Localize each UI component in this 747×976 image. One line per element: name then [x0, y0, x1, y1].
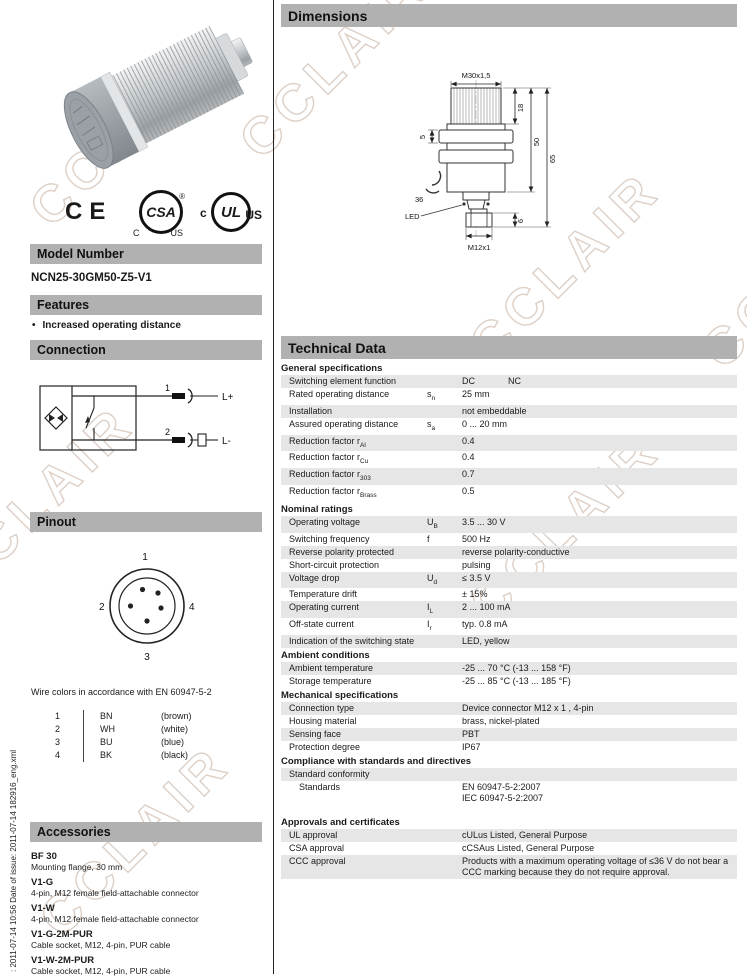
- accessory-desc: Cable socket, M12, 4-pin, PUR cable: [31, 966, 261, 976]
- dimensions-header: Dimensions: [281, 4, 737, 27]
- spec-row: Reverse polarity protectedreverse polari…: [281, 546, 737, 559]
- spec-value: brass, nickel-plated: [462, 716, 737, 727]
- pin-3-label: 3: [144, 652, 150, 663]
- spec-row: Reduction factor rBrass0.5: [281, 485, 737, 502]
- feature-item: • Increased operating distance: [32, 320, 181, 331]
- spec-label: Storage temperature: [289, 676, 427, 687]
- dim-connector-label: M12x1: [468, 243, 491, 252]
- spec-label: Reduction factor rBrass: [289, 486, 427, 501]
- wire-row: 1 BN (brown): [30, 710, 192, 723]
- wire-color: (brown): [149, 710, 192, 723]
- wire-row: 4 BK (black): [30, 749, 192, 762]
- spec-symbol: [427, 486, 462, 501]
- spec-symbol: [427, 676, 462, 687]
- spec-label: Sensing face: [289, 729, 427, 740]
- spec-section-title: Mechanical specifications: [281, 688, 737, 702]
- spec-value: 0.4: [462, 452, 737, 467]
- spec-symbol: [427, 469, 462, 484]
- spec-row: Short-circuit protectionpulsing: [281, 559, 737, 572]
- pinout-diagram: 1 2 4 3: [92, 548, 202, 666]
- spec-symbol: [427, 452, 462, 467]
- spec-value: -25 ... 85 °C (-13 ... 185 °F): [462, 676, 737, 687]
- spec-symbol: UB: [427, 517, 462, 532]
- accessories-header: Accessories: [30, 822, 262, 842]
- wire-row: 2 WH (white): [30, 723, 192, 736]
- spec-label: Housing material: [289, 716, 427, 727]
- spec-label: Temperature drift: [289, 589, 427, 600]
- spec-row: Switching frequencyf500 Hz: [281, 533, 737, 546]
- ce-mark: CE: [65, 198, 112, 226]
- pinout-header: Pinout: [30, 512, 262, 532]
- spec-label: Rated operating distance: [289, 389, 427, 404]
- dim-5-label: 5: [418, 135, 427, 139]
- spec-symbol: [427, 742, 462, 753]
- accessory-name: V1-W: [31, 903, 261, 914]
- spec-row: Assured operating distancesa0 ... 20 mm: [281, 418, 737, 435]
- spec-row: Ambient temperature-25 ... 70 °C (-13 ..…: [281, 662, 737, 675]
- connection-diagram: 1 L+ 2 L-: [32, 368, 244, 468]
- technical-table: General specificationsSwitching element …: [281, 361, 737, 879]
- feature-text: Increased operating distance: [43, 320, 181, 331]
- technical-data-header: Technical Data: [281, 336, 737, 359]
- spec-value: 0.4: [462, 436, 737, 451]
- spec-symbol: [427, 843, 462, 854]
- product-photo: [50, 4, 268, 184]
- spec-symbol: [427, 703, 462, 714]
- spec-symbol: [427, 716, 462, 727]
- spec-section-title: Nominal ratings: [281, 502, 737, 516]
- spec-value: cCSAus Listed, General Purpose: [462, 843, 737, 854]
- accessory-name: BF 30: [31, 851, 261, 862]
- ul-c-label: c: [200, 206, 207, 220]
- spec-section-title: Compliance with standards and directives: [281, 754, 737, 768]
- certification-logos: CE CSA ® C US c UL US: [30, 188, 262, 238]
- spec-row: Reduction factor rCu0.4: [281, 451, 737, 468]
- led-label: LED: [405, 212, 420, 221]
- pin-2-label: 2: [99, 602, 105, 613]
- spec-symbol: [427, 769, 462, 780]
- spec-symbol: sn: [427, 389, 462, 404]
- spec-symbol: [427, 376, 462, 387]
- spec-value: ± 15%: [462, 589, 737, 600]
- spec-value: 3.5 ... 30 V: [462, 517, 737, 532]
- spec-value-2: NC: [508, 376, 737, 387]
- conn-pin1-label: 1: [165, 383, 170, 393]
- spec-section-title: Ambient conditions: [281, 648, 737, 662]
- spec-value: 0.7: [462, 469, 737, 484]
- spec-label: Reduction factor rCu: [289, 452, 427, 467]
- pin-1-label: 1: [142, 552, 148, 563]
- spec-row: Off-state currentIrtyp. 0.8 mA: [281, 618, 737, 635]
- spec-symbol: Ud: [427, 573, 462, 588]
- spec-symbol: [427, 589, 462, 600]
- spec-row: CSA approvalcCSAus Listed, General Purpo…: [281, 842, 737, 855]
- spec-label: Reduction factor rAl: [289, 436, 427, 451]
- spec-value: [462, 769, 737, 780]
- spec-symbol: [427, 636, 462, 647]
- accessory-item: V1-G 4-pin, M12 female field-attachable …: [31, 877, 261, 898]
- accessory-item: BF 30 Mounting flange, 30 mm: [31, 851, 261, 872]
- spec-row: Operating currentIL2 ... 100 mA: [281, 601, 737, 618]
- spec-symbol: [427, 436, 462, 451]
- accessory-desc: 4-pin, M12 female field-attachable conne…: [31, 914, 261, 924]
- spec-row: Operating voltageUB3.5 ... 30 V: [281, 516, 737, 533]
- spec-row: Reduction factor r3030.7: [281, 468, 737, 485]
- conn-pin2-label: 2: [165, 427, 170, 437]
- ul-mark: c UL US: [200, 190, 262, 236]
- spec-label: Switching element function: [289, 376, 427, 387]
- spec-label: Operating current: [289, 602, 427, 617]
- accessory-name: V1-G: [31, 877, 261, 888]
- wire-pin: 1: [30, 710, 83, 723]
- dim-18-label: 18: [516, 104, 525, 112]
- csa-us-label: US: [170, 228, 183, 238]
- spec-symbol: [427, 406, 462, 417]
- spec-row: Installationnot embeddable: [281, 405, 737, 418]
- accessories-list: BF 30 Mounting flange, 30 mm V1-G 4-pin,…: [31, 846, 261, 976]
- spec-symbol: [427, 856, 462, 878]
- spec-label: Short-circuit protection: [289, 560, 427, 571]
- spec-symbol: [427, 830, 462, 841]
- spec-label: Reduction factor r303: [289, 469, 427, 484]
- dim-thread-label: M30x1,5: [462, 71, 491, 80]
- dim-36-label: 36: [415, 195, 423, 204]
- spec-row: Standard conformity: [281, 768, 737, 781]
- spec-label: UL approval: [289, 830, 427, 841]
- datasheet-page: { "watermark": {"text": "CCLAIR"}, "side…: [0, 0, 747, 974]
- conn-lminus-label: L-: [222, 436, 231, 447]
- accessory-name: V1-W-2M-PUR: [31, 955, 261, 966]
- spec-symbol: sa: [427, 419, 462, 434]
- wire-pin: 3: [30, 736, 83, 749]
- spec-row: Protection degreeIP67: [281, 741, 737, 754]
- spec-value: PBT: [462, 729, 737, 740]
- ul-us-label: US: [245, 208, 262, 222]
- spec-value: Device connector M12 x 1 , 4-pin: [462, 703, 737, 714]
- spec-symbol: [427, 560, 462, 571]
- spec-row: UL approvalcULus Listed, General Purpose: [281, 829, 737, 842]
- spec-row: Storage temperature-25 ... 85 °C (-13 ..…: [281, 675, 737, 688]
- wire-code: WH: [83, 723, 149, 736]
- spec-value: pulsing: [462, 560, 737, 571]
- registered-icon: ®: [179, 192, 185, 201]
- dim-65-label: 65: [548, 155, 557, 163]
- spec-label: Standard conformity: [289, 769, 427, 780]
- spec-value: DC: [462, 376, 508, 387]
- spec-value: ≤ 3.5 V: [462, 573, 737, 588]
- spec-row: Housing materialbrass, nickel-plated: [281, 715, 737, 728]
- accessory-item: V1-W-2M-PUR Cable socket, M12, 4-pin, PU…: [31, 955, 261, 976]
- spec-value: 25 mm: [462, 389, 737, 404]
- spec-label: Standards: [289, 782, 427, 804]
- pin-4-label: 4: [189, 602, 195, 613]
- spec-symbol: [427, 663, 462, 674]
- column-divider: [273, 0, 274, 974]
- connection-header: Connection: [30, 340, 262, 360]
- spec-row: Rated operating distancesn25 mm: [281, 388, 737, 405]
- spec-value: Products with a maximum operating voltag…: [462, 856, 737, 878]
- dim-6-label: 6: [516, 219, 525, 223]
- accessory-item: V1-W 4-pin, M12 female field-attachable …: [31, 903, 261, 924]
- spec-row: Temperature drift± 15%: [281, 588, 737, 601]
- model-number-header: Model Number: [30, 244, 262, 264]
- spec-value: 0.5: [462, 486, 737, 501]
- spec-label: Indication of the switching state: [289, 636, 427, 647]
- spec-label: Assured operating distance: [289, 419, 427, 434]
- wire-row: 3 BU (blue): [30, 736, 192, 749]
- spec-label: Voltage drop: [289, 573, 427, 588]
- spec-row: Indication of the switching stateLED, ye…: [281, 635, 737, 648]
- wire-code: BU: [83, 736, 149, 749]
- spec-value: not embeddable: [462, 406, 737, 417]
- document-edge-info: : 2011-07-14 10:56 Date of issue: 2011-0…: [9, 750, 18, 972]
- spec-label: CSA approval: [289, 843, 427, 854]
- wire-color: (blue): [149, 736, 184, 749]
- spec-symbol: IL: [427, 602, 462, 617]
- spec-label: Operating voltage: [289, 517, 427, 532]
- spec-label: Protection degree: [289, 742, 427, 753]
- accessory-item: V1-G-2M-PUR Cable socket, M12, 4-pin, PU…: [31, 929, 261, 950]
- dimension-drawing: M30x1,5 18 50 65 6 5 36 LED M12x1: [393, 68, 593, 268]
- model-number: NCN25-30GM50-Z5-V1: [31, 272, 152, 284]
- spec-value: typ. 0.8 mA: [462, 619, 737, 634]
- wire-pin: 4: [30, 749, 83, 762]
- spec-label: Installation: [289, 406, 427, 417]
- spec-symbol: f: [427, 534, 462, 545]
- accessory-desc: Mounting flange, 30 mm: [31, 862, 261, 872]
- spec-value: -25 ... 70 °C (-13 ... 158 °F): [462, 663, 737, 674]
- spec-row: Voltage dropUd≤ 3.5 V: [281, 572, 737, 589]
- spec-value: EN 60947-5-2:2007IEC 60947-5-2:2007: [462, 782, 737, 804]
- spec-value: 0 ... 20 mm: [462, 419, 737, 434]
- spec-row: Switching element functionDCNC: [281, 375, 737, 388]
- wire-code: BN: [83, 710, 149, 723]
- spec-symbol: [427, 547, 462, 558]
- spec-section-title: General specifications: [281, 361, 737, 375]
- accessory-name: V1-G-2M-PUR: [31, 929, 261, 940]
- spec-symbol: [427, 729, 462, 740]
- spec-label: Connection type: [289, 703, 427, 714]
- wire-color: (black): [149, 749, 188, 762]
- spec-section-title: Approvals and certificates: [281, 815, 737, 829]
- spec-label: CCC approval: [289, 856, 427, 878]
- wire-pin: 2: [30, 723, 83, 736]
- spec-value: IP67: [462, 742, 737, 753]
- spec-value: 500 Hz: [462, 534, 737, 545]
- spec-value: LED, yellow: [462, 636, 737, 647]
- spec-row: Sensing facePBT: [281, 728, 737, 741]
- spec-row: Reduction factor rAl0.4: [281, 435, 737, 452]
- accessory-desc: 4-pin, M12 female field-attachable conne…: [31, 888, 261, 898]
- spec-label: Switching frequency: [289, 534, 427, 545]
- spec-value: 2 ... 100 mA: [462, 602, 737, 617]
- csa-c-label: C: [133, 228, 140, 238]
- dim-50-label: 50: [532, 138, 541, 146]
- csa-mark: CSA ® C US: [133, 188, 185, 238]
- accessory-desc: Cable socket, M12, 4-pin, PUR cable: [31, 940, 261, 950]
- wire-colors-note: Wire colors in accordance with EN 60947-…: [31, 687, 212, 697]
- spec-row: CCC approvalProducts with a maximum oper…: [281, 855, 737, 879]
- spec-symbol: Ir: [427, 619, 462, 634]
- spec-row: Connection typeDevice connector M12 x 1 …: [281, 702, 737, 715]
- spec-row: StandardsEN 60947-5-2:2007IEC 60947-5-2:…: [281, 781, 737, 805]
- spec-value: reverse polarity-conductive: [462, 547, 737, 558]
- features-header: Features: [30, 295, 262, 315]
- spec-label: Ambient temperature: [289, 663, 427, 674]
- spec-value: cULus Listed, General Purpose: [462, 830, 737, 841]
- spec-label: Reverse polarity protected: [289, 547, 427, 558]
- bullet-icon: •: [32, 320, 36, 331]
- spec-symbol: [427, 782, 462, 804]
- wire-color-table: 1 BN (brown) 2 WH (white) 3 BU (blue) 4 …: [30, 710, 192, 762]
- spec-label: Off-state current: [289, 619, 427, 634]
- conn-lplus-label: L+: [222, 392, 234, 403]
- wire-color: (white): [149, 723, 188, 736]
- wire-code: BK: [83, 749, 149, 762]
